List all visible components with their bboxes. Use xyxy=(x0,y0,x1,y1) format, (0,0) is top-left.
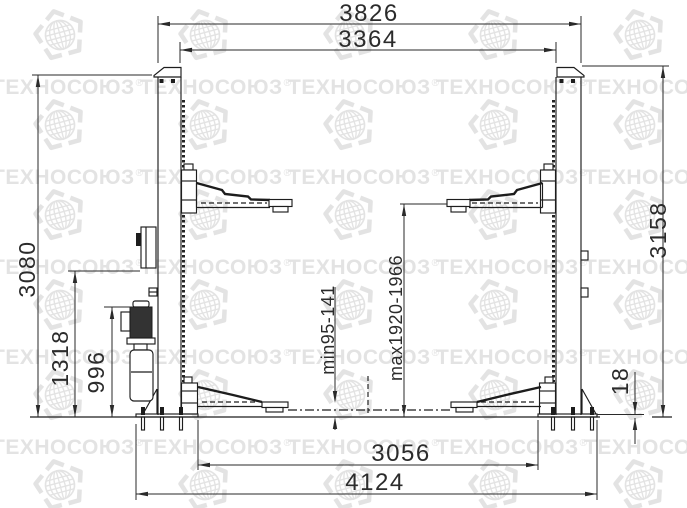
control-box xyxy=(141,227,156,268)
right-arm-lowered xyxy=(451,387,541,412)
right-post xyxy=(447,68,597,431)
left-carriage-lowered xyxy=(182,383,198,414)
dim-column-height-right: 3158 xyxy=(582,66,671,417)
power-unit xyxy=(121,227,157,401)
right-anchor-bolts xyxy=(551,407,594,430)
dim-base-plate-thickness-label: 18 xyxy=(607,367,633,396)
left-arm-raised xyxy=(197,183,293,212)
left-anchor-bolts xyxy=(141,407,183,430)
dim-power-unit-height-label: 1318 xyxy=(47,329,73,386)
left-base-plate xyxy=(136,414,198,417)
left-carriage-raised xyxy=(182,170,197,213)
dim-pad-min-height-label: min95-141 xyxy=(318,285,338,375)
dim-base-plate-thickness: 18 xyxy=(597,367,644,444)
dim-pad-max-height: max1920-1966 xyxy=(386,204,447,417)
dim-base-inner-span: 3056 xyxy=(198,420,538,470)
dim-base-inner-span-label: 3056 xyxy=(371,440,430,467)
dim-pad-min-height: min95-141 xyxy=(318,285,338,430)
dim-power-unit-height: 1318 xyxy=(47,271,140,417)
dim-column-height-right-label: 3158 xyxy=(645,201,671,258)
right-carriage-top-roller xyxy=(544,164,553,170)
lift-drawing: 3826 3364 3080 1318 xyxy=(0,0,687,508)
right-arm-raised xyxy=(447,183,543,212)
dim-column-height-left-label: 3080 xyxy=(14,240,40,297)
right-base-plate xyxy=(538,414,597,417)
dim-pad-max-height-label: max1920-1966 xyxy=(386,255,406,381)
dim-base-overall-span: 4124 xyxy=(136,420,597,500)
dim-overall-width-label: 3826 xyxy=(339,0,398,27)
dim-column-inner-span-label: 3364 xyxy=(338,26,397,53)
hydraulic-tank xyxy=(130,350,153,401)
motor xyxy=(130,307,152,338)
left-arm-lowered xyxy=(198,387,288,412)
dim-column-inner-span: 3364 xyxy=(180,26,556,63)
left-post xyxy=(136,68,292,431)
left-carriage-top-roller xyxy=(184,164,193,170)
dim-pump-height-label: 996 xyxy=(83,351,109,394)
motor-cap xyxy=(133,301,149,307)
technical-drawing-page: ТЕХНОСОЮЗ®ТЕХНОСОЮЗ®ТЕХНОСОЮЗ®ТЕХНОСОЮЗ®… xyxy=(0,0,687,508)
dim-base-overall-span-label: 4124 xyxy=(345,469,404,496)
